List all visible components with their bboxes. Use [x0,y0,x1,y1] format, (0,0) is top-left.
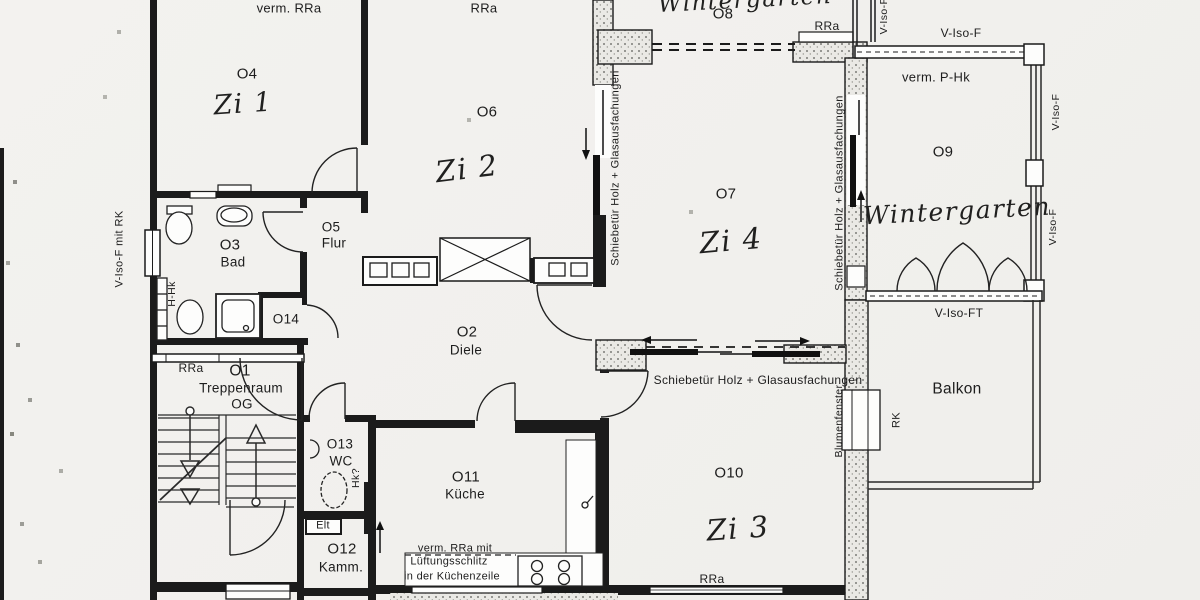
room-o4-number-label: O4 [237,67,258,82]
hatched-walls [390,0,868,600]
room-o4-handwritten-label: Zi 1 [213,88,274,119]
room-o3-name-label: Bad [221,255,246,269]
room-o12-name-label: Kamm. [319,560,363,574]
blumenfenster-label: Blumenfenster [834,385,845,458]
balkon-name-label: Balkon [932,381,981,397]
room-o8-window-note: RRa [815,20,840,32]
room-o1-floor-label: OG [231,397,253,411]
room-o13-heating-note: Hk? [351,468,362,488]
room-o6-top-note: RRa [471,2,498,15]
o11-vent-note-line1: verm. RRa mit [418,544,492,555]
room-o1-window-note: RRa [179,362,204,374]
room-o10-handwritten-label: Zi 3 [706,512,771,545]
scan-edge-artifact [0,148,4,600]
room-o9-heating-note: verm. P-Hk [902,71,970,84]
elt-label: Elt [316,521,330,532]
room-o5-name-label: Flur [322,236,346,250]
room-o5-number-label: O5 [322,220,341,234]
v-iso-f-label-right-1: V-Iso-F [1051,94,1062,131]
room-o8-number-label: O8 [713,7,734,22]
room-o4-top-note: verm. RRa [257,2,322,15]
room-o1-number-label: O1 [229,363,250,379]
room-o7-handwritten-label: Zi 4 [698,224,763,258]
scanned-floorplan-page: verm. RRa RRa O4 Zi 1 O6 Zi 2 Wintergart… [0,0,1200,600]
stairs [158,407,296,507]
room-o10-number-label: O10 [714,466,743,481]
rk-label: RK [892,412,903,428]
v-iso-f-label-right-2: V-Iso-F [1048,209,1059,246]
room-o2-name-label: Diele [450,343,482,357]
room-o6-number-label: O6 [477,105,498,120]
v-iso-f-label-o9-top: V-Iso-F [941,27,982,39]
room-o10-window-note: RRa [700,573,725,585]
room-o13-number-label: O13 [327,437,353,451]
o11-vent-note-line3: in der Küchenzeile [404,572,500,583]
room-o6-handwritten-label: Zi 2 [434,151,500,187]
v-iso-f-label-o8: V-Iso-F [879,0,890,34]
room-o2-number-label: O2 [457,325,478,340]
room-o13-name-label: WC [329,454,352,468]
sliding-door-label-right: Schiebetür Holz + Glasausfachungen [835,95,846,291]
h-hk-label: H-Hk [167,281,178,307]
room-o11-number-label: O11 [452,470,480,485]
room-o1-name-label: Treppenraum [199,381,283,395]
closets [363,238,594,285]
room-o11-name-label: Küche [445,487,485,501]
sliding-door-label-horizontal: Schiebetür Holz + Glasausfachungen [654,374,863,386]
room-o14-number-label: O14 [273,312,299,326]
room-o12-number-label: O12 [327,542,356,557]
room-o9-number-label: O9 [933,145,954,160]
v-iso-ft-label: V-Iso-FT [935,307,983,319]
scan-speckle-artifacts [0,0,2,2]
room-o7-number-label: O7 [716,187,737,202]
room-o3-number-label: O3 [220,238,241,253]
floorplan-drawing [0,0,1200,600]
o11-vent-note-line2: Lüftungsschlitz [410,557,487,568]
sliding-door-label-left: Schiebetür Holz + Glasausfachungen [611,70,622,266]
v-iso-f-mit-rk-label: V-Iso-F mit RK [115,210,126,287]
